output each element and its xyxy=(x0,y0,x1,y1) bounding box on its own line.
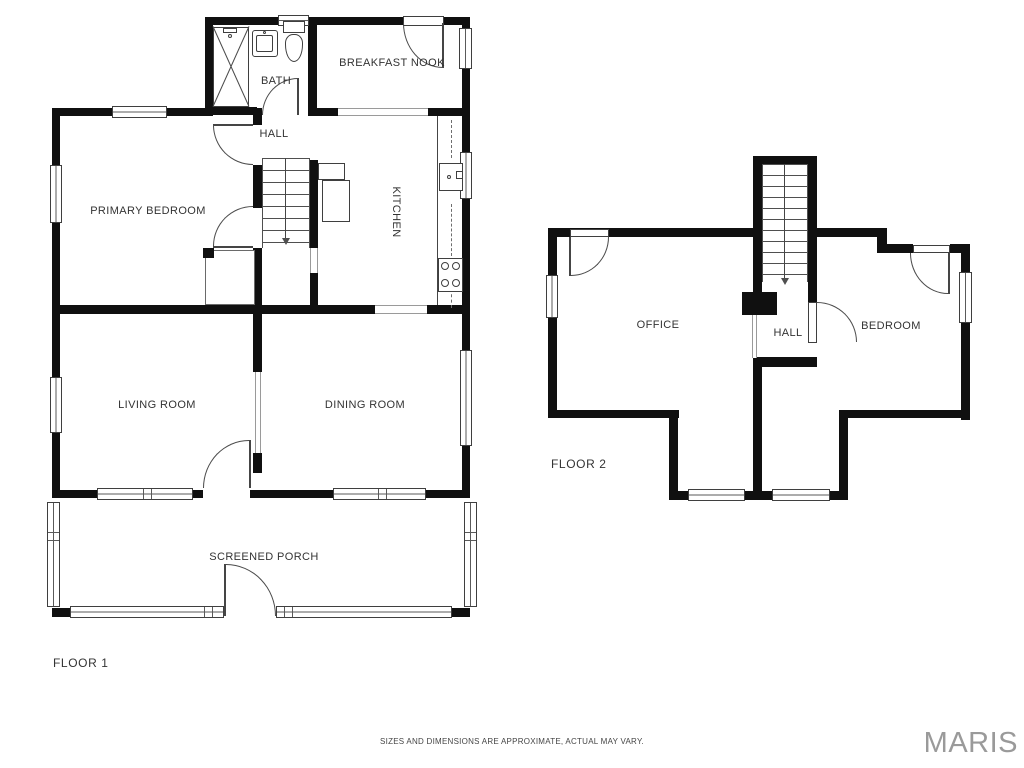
door-leaf xyxy=(249,440,251,488)
window-mullion xyxy=(465,532,476,533)
wall xyxy=(253,453,262,473)
wall xyxy=(205,107,257,115)
wall xyxy=(669,410,678,500)
wall xyxy=(548,228,557,418)
cased-opening xyxy=(752,315,757,358)
stove-burner xyxy=(452,262,460,270)
door-opening xyxy=(570,229,609,237)
upper-cabinet-dashed-line xyxy=(451,204,452,256)
room-label-primary-bedroom: PRIMARY BEDROOM xyxy=(90,205,206,217)
cased-opening xyxy=(338,108,428,116)
kitchen-sink-drain xyxy=(447,175,451,179)
wall xyxy=(310,160,318,248)
door-swing-arc xyxy=(571,237,609,276)
wall xyxy=(961,244,970,420)
window-mullion xyxy=(48,532,59,533)
wall xyxy=(839,410,970,418)
cased-opening xyxy=(310,248,318,273)
wall xyxy=(52,490,97,498)
stairs-direction-line xyxy=(784,164,785,278)
stove-burner xyxy=(441,279,449,287)
wall xyxy=(817,228,886,237)
door-leaf xyxy=(213,246,253,248)
wall xyxy=(253,108,262,125)
kitchen-faucet xyxy=(456,171,463,179)
maris-watermark: MARIS xyxy=(924,727,1018,760)
wall xyxy=(452,608,470,617)
wall xyxy=(250,490,333,498)
window-mullion xyxy=(378,489,379,499)
room-label-bath: BATH xyxy=(261,75,291,87)
wall xyxy=(753,357,817,367)
room-label-dining-room: DINING ROOM xyxy=(325,399,405,411)
room-label-hall2: HALL xyxy=(773,327,802,339)
door-swing-arc xyxy=(226,564,276,616)
window xyxy=(546,275,558,318)
window-mullion xyxy=(292,607,293,617)
window xyxy=(959,272,972,323)
disclaimer-text: SIZES AND DIMENSIONS ARE APPROXIMATE, AC… xyxy=(380,737,644,746)
room-label-bedroom: BEDROOM xyxy=(861,320,921,332)
window xyxy=(276,606,452,618)
window-mullion xyxy=(386,489,387,499)
window xyxy=(112,106,167,118)
window xyxy=(464,502,477,607)
cabinet xyxy=(318,163,345,180)
wall xyxy=(426,490,470,498)
window-mullion xyxy=(465,540,476,541)
door-leaf xyxy=(948,253,950,294)
window xyxy=(47,502,60,607)
wall xyxy=(887,244,913,253)
door-swing-arc xyxy=(817,302,857,342)
stairs-down-arrow-icon xyxy=(781,278,789,285)
floor2-label: FLOOR 2 xyxy=(551,457,607,471)
wall xyxy=(52,305,375,314)
wall xyxy=(253,314,262,372)
window-mullion xyxy=(212,607,213,617)
window-mullion xyxy=(143,489,144,499)
stairs xyxy=(762,164,808,282)
window xyxy=(333,488,426,500)
wall xyxy=(839,410,848,500)
window xyxy=(70,606,224,618)
chimney xyxy=(742,292,777,315)
stove-burner xyxy=(441,262,449,270)
window xyxy=(97,488,193,500)
stairs-down-arrow-icon xyxy=(282,238,290,245)
room-label-breakfast-nook: BREAKFAST NOOK xyxy=(339,57,445,69)
wall xyxy=(253,165,262,208)
door-swing-arc xyxy=(213,125,253,165)
door-swing-arc xyxy=(203,440,249,488)
stove-burner xyxy=(452,279,460,287)
window-mullion xyxy=(204,607,205,617)
door-leaf xyxy=(808,302,817,343)
wall xyxy=(310,273,318,314)
shower-head-icon xyxy=(223,28,237,33)
window-mullion xyxy=(151,489,152,499)
floor-plan: BATH BREAKFAST NOOK HALL PRIMARY BEDROOM… xyxy=(0,0,1024,768)
window xyxy=(460,350,472,446)
room-label-kitchen: KITCHEN xyxy=(390,186,402,237)
cased-opening xyxy=(375,305,427,314)
wall xyxy=(193,490,203,498)
door-opening xyxy=(913,245,950,253)
room-label-screened-porch: SCREENED PORCH xyxy=(209,551,319,563)
door-swing-arc xyxy=(213,206,253,246)
stairs-direction-line xyxy=(285,158,286,238)
wall xyxy=(205,17,213,116)
bath-faucet xyxy=(263,31,266,34)
window xyxy=(50,165,62,223)
cased-opening xyxy=(255,372,261,453)
window xyxy=(688,489,745,501)
refrigerator xyxy=(322,180,350,222)
wall xyxy=(317,108,338,116)
room-label-living-room: LIVING ROOM xyxy=(118,399,196,411)
wall xyxy=(308,17,317,116)
wall xyxy=(808,156,817,302)
wall xyxy=(753,156,762,296)
floor1-label: FLOOR 1 xyxy=(53,656,109,670)
window xyxy=(459,28,472,69)
wall xyxy=(548,410,679,418)
door-swing-arc xyxy=(910,253,948,294)
closet xyxy=(205,250,255,305)
wall xyxy=(428,108,470,116)
stairs xyxy=(262,158,310,248)
wall xyxy=(753,367,762,500)
room-label-hall: HALL xyxy=(259,128,288,140)
window xyxy=(50,377,62,433)
wall xyxy=(203,248,214,258)
room-label-office: OFFICE xyxy=(637,319,680,331)
toilet-tank xyxy=(283,21,305,33)
wall xyxy=(52,608,70,617)
window-mullion xyxy=(284,607,285,617)
window-mullion xyxy=(48,540,59,541)
upper-cabinet-dashed-line xyxy=(451,120,452,158)
shower-head-icon xyxy=(228,34,232,38)
wall xyxy=(877,228,887,253)
window xyxy=(772,489,830,501)
wall xyxy=(427,305,470,314)
bath-sink-basin xyxy=(256,35,273,52)
toilet-bowl xyxy=(285,34,303,62)
